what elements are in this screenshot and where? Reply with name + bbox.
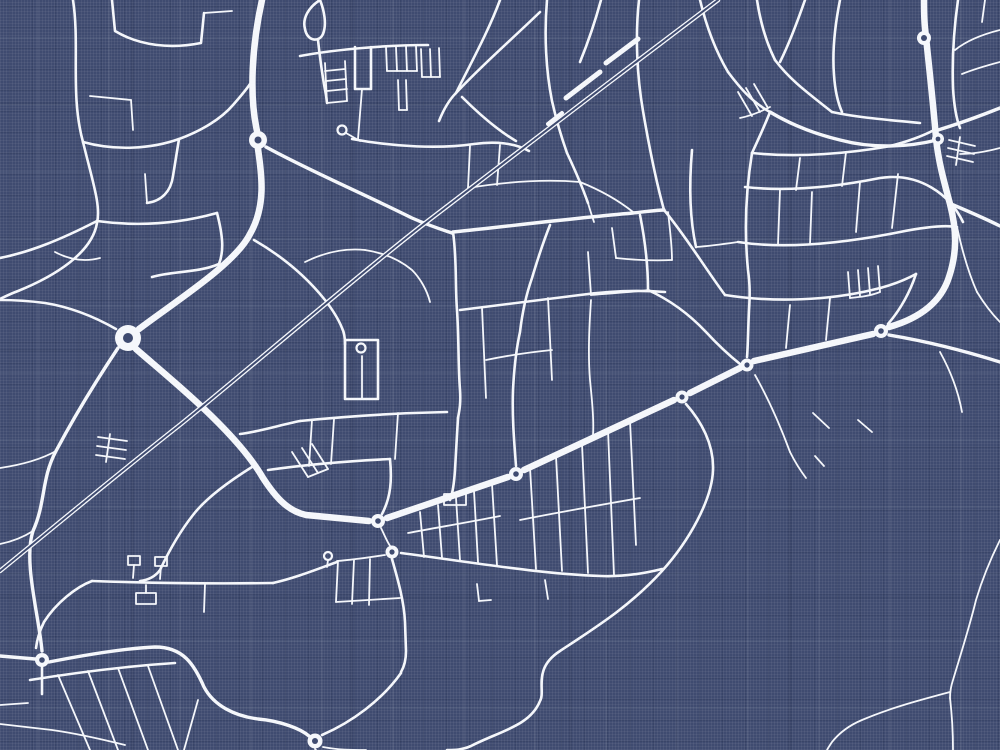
road-path-major (754, 334, 873, 361)
road-path-minor (640, 215, 648, 290)
road-path-minor (752, 130, 934, 155)
roundabout-island (123, 333, 133, 343)
road-path-minor (447, 404, 713, 750)
culdesac-bulb (324, 552, 332, 560)
road-path-secondary (770, 112, 937, 146)
road-path-major (136, 349, 369, 521)
road-path-lane (486, 350, 552, 360)
road-path-minor (462, 97, 516, 141)
road-path-lane (947, 156, 973, 162)
road-path-minor (97, 213, 217, 224)
road-path-minor (453, 232, 460, 418)
road-path-lane (842, 152, 846, 186)
road-path-lane (131, 100, 133, 130)
road-path-lane (0, 451, 56, 468)
road-path-lane (336, 598, 400, 602)
road-path-lane (612, 228, 616, 258)
road-path-lane (365, 250, 430, 302)
road-path-lane (520, 498, 640, 520)
road-path-lane (977, 292, 1000, 322)
road-path-lane (815, 456, 824, 466)
road-path-lane (479, 600, 491, 601)
road-path-lane (827, 692, 950, 750)
road-path-minor (757, 0, 775, 60)
road-path-lane (468, 146, 470, 188)
road-path-lane (430, 49, 431, 77)
road-path-lane (358, 89, 362, 139)
road-path-minor (392, 559, 406, 672)
road-path-minor (953, 0, 960, 128)
roundabout-island (375, 518, 381, 524)
roundabout-island (744, 362, 749, 367)
road-path-lane (982, 0, 985, 22)
road-path-lane (616, 258, 672, 260)
road-path-lane (630, 421, 636, 545)
road-path-minor (513, 225, 550, 466)
road-path-lane (548, 298, 552, 380)
roundabout-island (513, 471, 519, 477)
road-path-lane (381, 528, 391, 547)
road-path-lane (420, 512, 424, 557)
road-path-lane (326, 79, 346, 81)
road-path-lane (813, 413, 829, 428)
road-path-lane (305, 250, 365, 263)
road-path-minor (637, 0, 664, 210)
road-path-minor (746, 153, 752, 357)
road-path-lane (957, 227, 977, 292)
road-path-lane (398, 80, 399, 110)
road-path-lane (439, 48, 440, 77)
road-path-major (252, 0, 262, 131)
road-path-lane (477, 584, 479, 601)
road-path-major (889, 0, 955, 327)
road-path-minor (460, 291, 665, 310)
road-path-lane (456, 498, 460, 560)
road-path-lane (474, 491, 478, 562)
road-path-lane (810, 192, 812, 244)
roundabout-island (936, 137, 941, 142)
station-platform (606, 39, 638, 63)
road-path-lane (337, 555, 385, 561)
road-path-lane (345, 61, 347, 101)
road-path-minor (752, 112, 770, 153)
road-path-minor (567, 153, 588, 203)
road-path-secondary (938, 108, 1000, 130)
road-path-lane (580, 182, 633, 212)
road-path-minor (147, 139, 179, 203)
roundabout-island (39, 657, 45, 663)
road-path-minor (833, 0, 842, 112)
road-path-lane (406, 80, 407, 110)
road-path-minor (690, 150, 696, 247)
road-path-lane (0, 703, 28, 705)
road-path-lane (955, 30, 1000, 50)
road-path-minor (300, 412, 447, 421)
road-path-minor (775, 60, 832, 112)
road-path-major (524, 400, 674, 470)
road-path-minor (456, 0, 500, 93)
road-path-lane (950, 698, 953, 750)
road-path-lane (892, 174, 898, 228)
road-path-minor (648, 290, 740, 364)
road-path-lane (949, 140, 975, 146)
road-path-minor (352, 139, 529, 151)
road-path-lane (204, 584, 205, 612)
roundabout-island (255, 137, 262, 144)
road-path-lane (352, 560, 354, 604)
road-path-secondary (0, 656, 35, 659)
road-path-minor (83, 84, 250, 148)
culdesac-bulb (357, 344, 366, 353)
road-path-minor (780, 0, 805, 62)
road-path-minor (36, 581, 92, 648)
road-path-minor (112, 0, 204, 46)
road-path-minor (304, 0, 325, 40)
road-path-minor (355, 47, 371, 89)
road-path-minor (30, 663, 175, 680)
road-path-lane (148, 666, 178, 750)
road-path-lane (204, 11, 232, 13)
road-path-secondary (30, 348, 118, 651)
road-path-lane (96, 455, 125, 459)
road-path-lane (796, 158, 800, 190)
road-path-lane (589, 300, 593, 435)
road-path-lane (128, 556, 140, 565)
road-path-lane (369, 559, 370, 605)
road-path-lane (826, 298, 830, 340)
road-path-lane (416, 46, 417, 71)
road-path-lane (438, 505, 442, 558)
roundabout-island (389, 549, 394, 554)
road-path-lane (962, 62, 1000, 74)
road-path-lane (482, 308, 486, 398)
roundabout-island (679, 394, 684, 399)
road-path-minor (738, 226, 957, 245)
road-path-minor (745, 177, 963, 222)
road-path-secondary (889, 335, 1000, 362)
road-path-lane (98, 437, 127, 441)
road-path-lane (940, 352, 962, 412)
road-path-lane (858, 420, 872, 432)
road-path-lane (97, 446, 126, 450)
road-path-lane (327, 89, 347, 91)
street-network-svg (0, 0, 1000, 750)
road-path-lane (90, 96, 131, 100)
road-path-lane (336, 561, 338, 602)
road-path-lane (545, 580, 548, 599)
road-path-lane (136, 593, 156, 604)
road-path-minor (439, 12, 540, 121)
road-path-lane (325, 69, 345, 71)
road-path-lane (145, 174, 147, 203)
road-path-lane (755, 375, 790, 452)
road-path-lane (696, 242, 738, 247)
road-path-lane (950, 540, 1000, 698)
road-path-lane (58, 675, 90, 750)
road-path-lane (0, 531, 33, 544)
road-path-minor (832, 112, 920, 123)
road-path-major (690, 368, 740, 393)
road-path-secondary (49, 647, 309, 736)
road-path-lane (588, 252, 591, 295)
road-path-lane (421, 49, 422, 77)
road-path-lane (327, 101, 347, 103)
road-path-lane (0, 724, 125, 745)
road-path-minor (92, 581, 273, 583)
road-path-secondary (453, 210, 664, 232)
road-path-secondary (266, 147, 452, 233)
road-path-lane (406, 46, 407, 71)
road-path-lane (468, 181, 580, 188)
road-path-minor (450, 418, 458, 500)
culdesac-bulb (338, 126, 347, 135)
road-path-lane (386, 47, 387, 71)
road-path-lane (184, 700, 198, 750)
road-path-lane (118, 668, 148, 750)
road-path-major (387, 477, 508, 518)
road-path-lane (308, 469, 328, 477)
blueprint-map-poster (0, 0, 1000, 750)
road-path-lane (133, 565, 134, 578)
road-path-lane (396, 47, 397, 71)
roundabout-island (312, 738, 318, 744)
road-path-lane (588, 203, 594, 222)
road-path-lane (960, 148, 1000, 154)
road-path-lane (331, 419, 334, 464)
road-path-lane (790, 452, 806, 478)
road-path-minor (140, 467, 252, 581)
roundabout-island (878, 328, 884, 334)
road-path-lane (492, 484, 497, 565)
road-path-lane (786, 305, 790, 348)
road-path-minor (725, 274, 916, 300)
road-path-lane (778, 190, 780, 244)
roundabout-island (921, 35, 927, 41)
road-path-minor (664, 210, 725, 295)
road-path-minor (382, 459, 391, 514)
road-path-lane (395, 413, 398, 459)
road-path-minor (401, 553, 662, 576)
road-path-minor (273, 562, 337, 583)
road-path-minor (268, 459, 390, 470)
road-path-minor (240, 421, 300, 434)
road-path-minor (322, 673, 401, 735)
road-path-major (139, 149, 262, 329)
road-path-lane (856, 182, 860, 232)
road-path-minor (580, 0, 601, 62)
road-path-minor (0, 300, 116, 329)
